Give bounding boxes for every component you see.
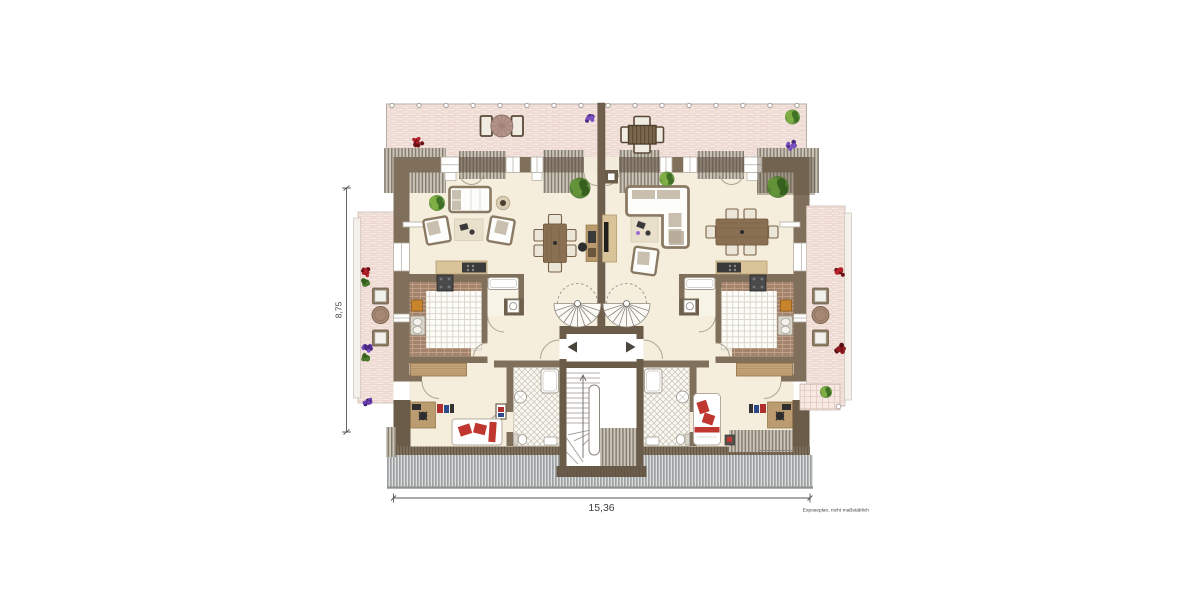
svg-text:Exposeplan, nicht maßstäblich: Exposeplan, nicht maßstäblich [803,508,870,514]
svg-text:8,75: 8,75 [334,301,344,318]
svg-text:15,36: 15,36 [588,502,614,514]
